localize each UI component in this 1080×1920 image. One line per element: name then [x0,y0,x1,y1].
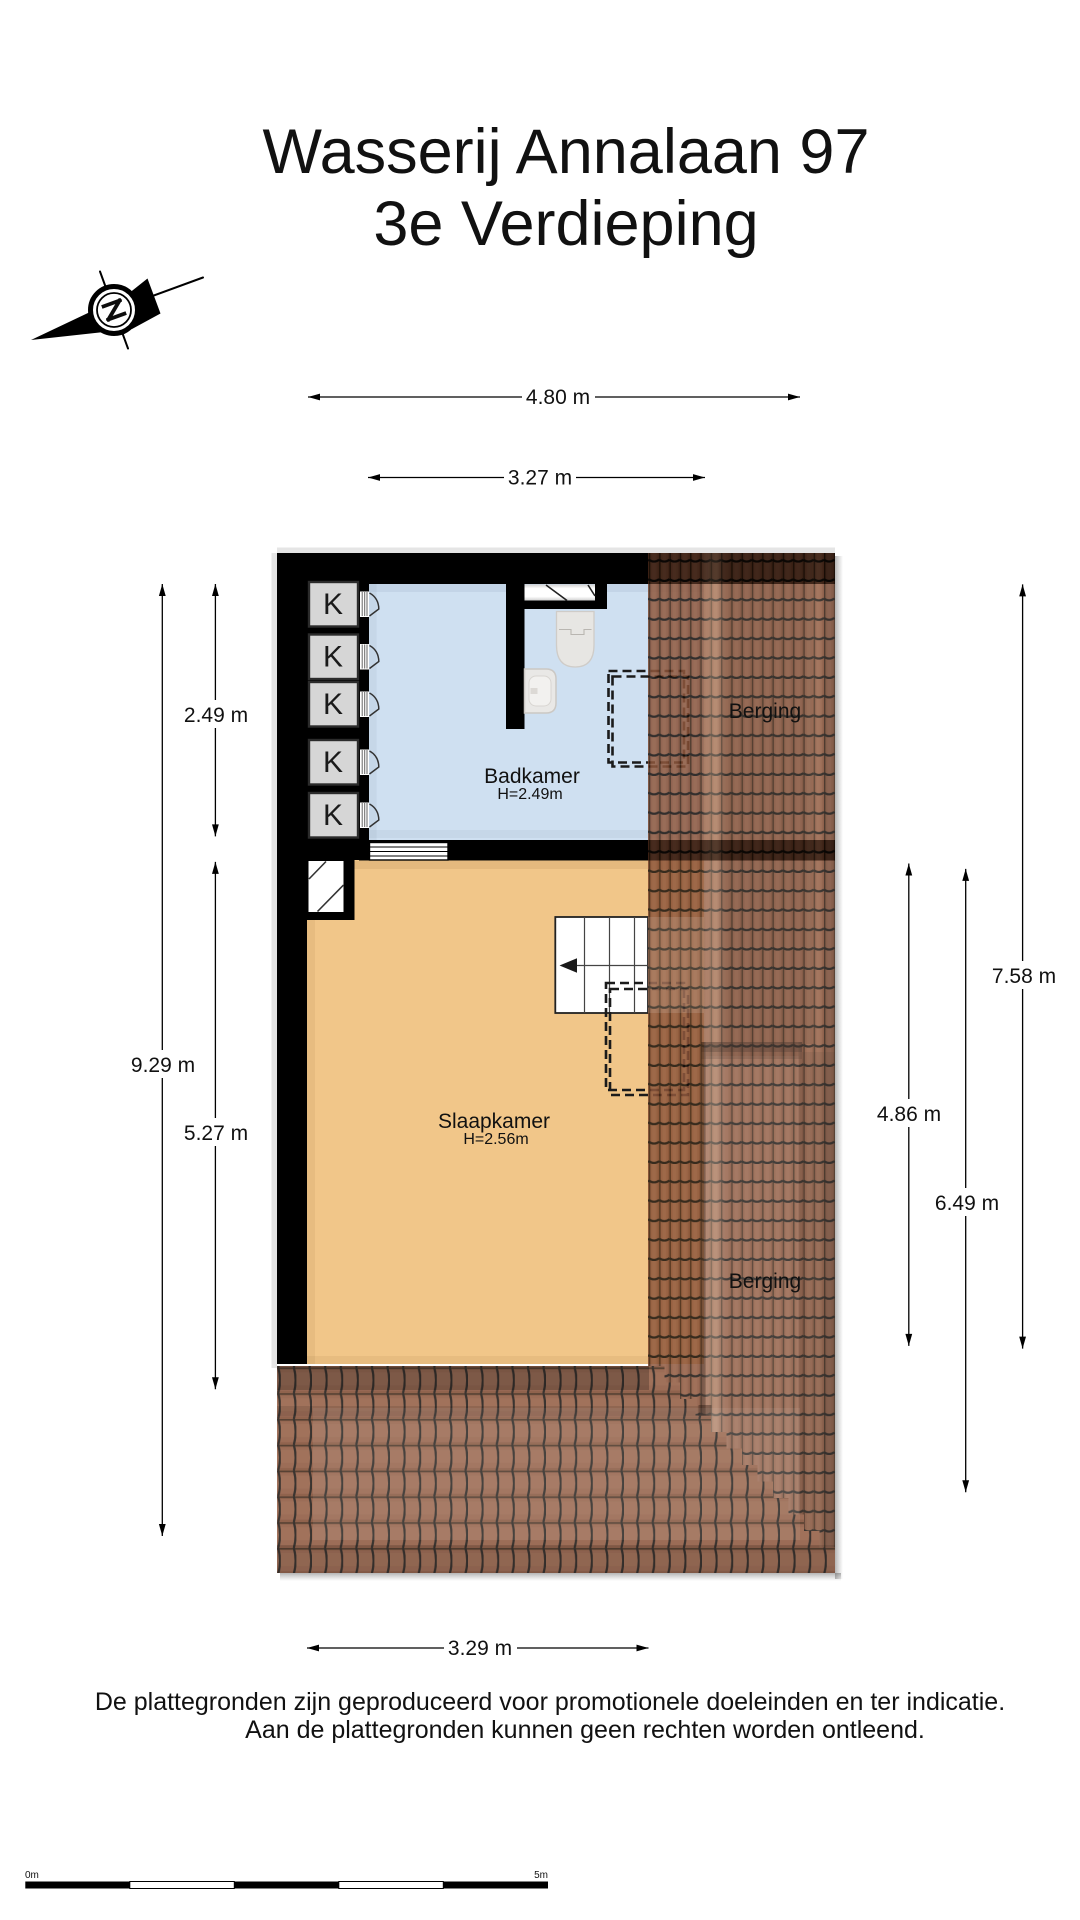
svg-text:3.29 m: 3.29 m [448,1637,512,1660]
svg-text:5.27 m: 5.27 m [184,1122,248,1145]
svg-text:2.49 m: 2.49 m [184,704,248,727]
svg-text:H=2.56m: H=2.56m [463,1131,528,1148]
svg-text:6.49 m: 6.49 m [935,1192,999,1215]
svg-text:7.58 m: 7.58 m [992,965,1056,988]
svg-text:5m: 5m [534,1870,548,1881]
svg-text:9.29 m: 9.29 m [131,1054,195,1077]
svg-text:Badkamer: Badkamer [484,765,580,788]
svg-text:3.27 m: 3.27 m [508,467,572,490]
svg-text:K: K [323,641,343,674]
svg-text:4.80 m: 4.80 m [526,386,590,409]
svg-text:Slaapkamer: Slaapkamer [438,1110,550,1133]
svg-text:De plattegronden zijn geproduc: De plattegronden zijn geproduceerd voor … [95,1688,1005,1716]
svg-text:3e Verdieping: 3e Verdieping [373,189,758,259]
svg-text:4.86 m: 4.86 m [877,1103,941,1126]
svg-text:Aan de plattegronden kunnen ge: Aan de plattegronden kunnen geen rechten… [245,1716,925,1744]
svg-text:Berging: Berging [729,1270,801,1293]
svg-text:Berging: Berging [729,700,801,723]
svg-text:K: K [323,746,343,779]
svg-text:K: K [323,799,343,832]
svg-text:0m: 0m [25,1870,39,1881]
svg-text:K: K [323,588,343,621]
svg-text:Wasserij Annalaan 97: Wasserij Annalaan 97 [262,117,869,187]
svg-text:H=2.49m: H=2.49m [497,786,562,803]
svg-text:K: K [323,688,343,721]
